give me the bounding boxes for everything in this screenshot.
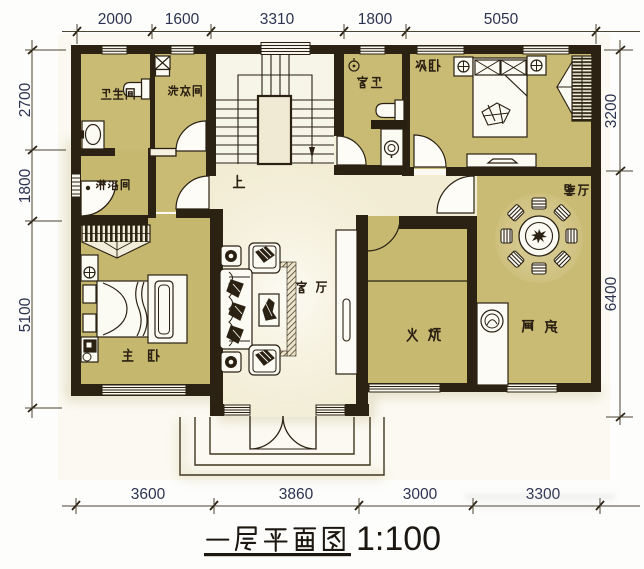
svg-text:1800: 1800 (358, 11, 393, 28)
svg-text:3000: 3000 (403, 486, 438, 503)
svg-text:2700: 2700 (17, 82, 34, 117)
svg-text:1800: 1800 (17, 168, 34, 203)
svg-text:6400: 6400 (603, 276, 620, 311)
svg-text:3310: 3310 (260, 11, 295, 28)
svg-text:1:100: 1:100 (356, 520, 441, 558)
svg-text:1600: 1600 (165, 11, 200, 28)
svg-text:3600: 3600 (131, 486, 166, 503)
svg-text:3200: 3200 (603, 93, 620, 128)
svg-text:3860: 3860 (279, 486, 314, 503)
svg-text:5100: 5100 (17, 297, 34, 332)
svg-text:5050: 5050 (484, 11, 519, 28)
svg-text:2000: 2000 (98, 11, 133, 28)
